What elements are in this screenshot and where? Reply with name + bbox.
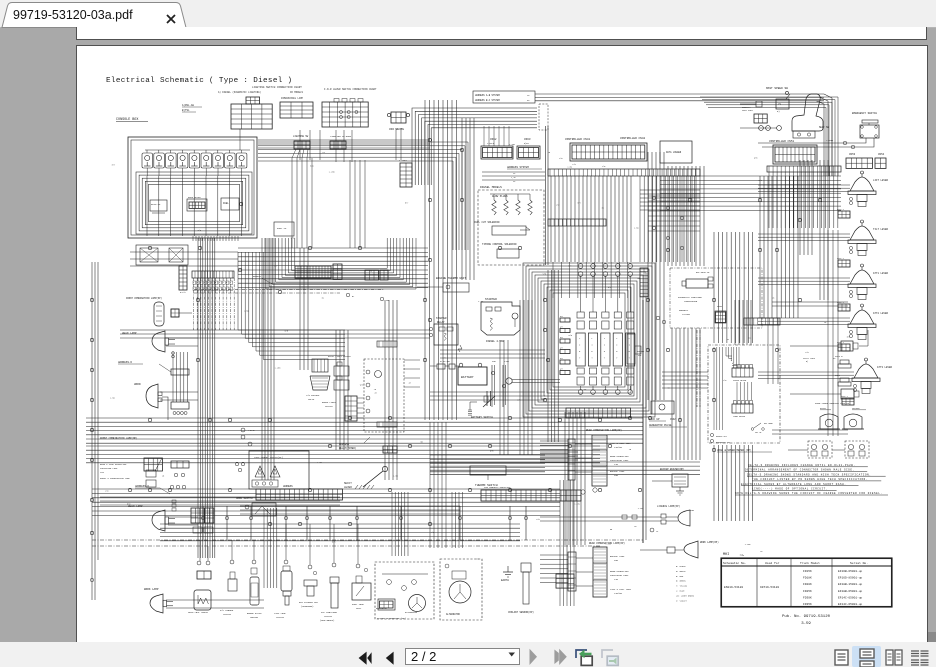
svg-text:T: T	[579, 357, 581, 360]
svg-text:FD18K: FD18K	[803, 577, 812, 580]
svg-text:REAR COMBINATION LAMP(OP): REAR COMBINATION LAMP(OP)	[586, 429, 622, 432]
svg-text:1.25L: 1.25L	[574, 503, 581, 506]
svg-text:W-T/M: W-T/M	[180, 292, 185, 294]
svg-text:F: F	[616, 350, 618, 353]
svg-text:Y/G: Y/G	[559, 157, 563, 160]
svg-text:F: F	[591, 350, 593, 353]
svg-text:ATT: ATT	[560, 347, 563, 350]
svg-text:CN62: CN62	[670, 418, 676, 421]
svg-text:EF18B-65001-up: EF18B-65001-up	[838, 590, 863, 593]
svg-text:Y/G: Y/G	[602, 165, 606, 168]
svg-text:G/R: G/R	[608, 286, 612, 289]
svg-text:HORN SWITCH: HORN SWITCH	[236, 497, 253, 500]
svg-text:LINE(----) MADE OF OPTIONAL CI: LINE(----) MADE OF OPTIONAL CIRCUIT.	[752, 487, 828, 491]
svg-text:SWITCH: SWITCH	[223, 613, 232, 616]
svg-text:HARNESS A-B SYSTEM: HARNESS A-B SYSTEM	[475, 94, 500, 97]
svg-text:EF16D-85001-up: EF16D-85001-up	[838, 577, 863, 580]
svg-text:ATT: ATT	[560, 368, 563, 371]
svg-text:1.5W: 1.5W	[634, 227, 639, 230]
svg-text:HARNESS.D: HARNESS.D	[118, 361, 132, 364]
svg-text:STARTER: STARTER	[436, 317, 447, 320]
svg-text:Truck Model: Truck Model	[800, 561, 820, 565]
svg-text:TILT LEVER: TILT LEVER	[873, 228, 889, 231]
svg-text:T: T	[629, 357, 631, 360]
svg-text:HARNESS.D: HARNESS.D	[135, 485, 149, 488]
svg-text:1P: 1P	[513, 172, 516, 175]
svg-text:LOAD METER: LOAD METER	[733, 415, 746, 418]
svg-text:NOT NORM: NOT NORM	[764, 423, 773, 425]
svg-text:REGULATOR: REGULATOR	[376, 607, 388, 610]
svg-text:CN9: CN9	[492, 360, 496, 363]
svg-text:2B: 2B	[162, 474, 165, 477]
svg-text:(ENG GROUP): (ENG GROUP)	[320, 619, 334, 622]
svg-text:1.25B: 1.25B	[745, 543, 752, 546]
svg-text:EF14C-65001-up: EF14C-65001-up	[838, 603, 863, 606]
svg-text:L,1P: L,1P	[511, 176, 517, 179]
svg-text:1.25B: 1.25B	[638, 507, 645, 510]
svg-text:2B: 2B	[772, 297, 775, 300]
svg-text:CN63: CN63	[524, 138, 531, 141]
svg-text:1.25B: 1.25B	[329, 170, 336, 173]
svg-text:REAR & SIDE DIRECTION: REAR & SIDE DIRECTION	[100, 463, 127, 466]
svg-text:4P: 4P	[527, 99, 530, 102]
svg-text:BACKUP BUZZER(OP): BACKUP BUZZER(OP)	[660, 468, 685, 471]
svg-text:CN6 WHITE: CN6 WHITE	[389, 128, 404, 131]
svg-text:CONTROLLER CN41: CONTROLLER CN41	[565, 138, 590, 141]
svg-text:L5: L5	[274, 264, 277, 267]
svg-text:SWITCH: SWITCH	[276, 616, 285, 619]
svg-text:INDICATOR LAMP: INDICATOR LAMP	[610, 459, 629, 462]
svg-text:1.5W: 1.5W	[393, 474, 398, 477]
svg-text:I: I	[579, 344, 581, 347]
svg-text:VINYL TAPE: VINYL TAPE	[803, 357, 816, 360]
svg-text:7-B9: 7-B9	[504, 360, 510, 363]
svg-text:FRONT COMBINATION LAMP(OP): FRONT COMBINATION LAMP(OP)	[100, 437, 138, 440]
svg-text:STOP & TAIL LAMP: STOP & TAIL LAMP	[610, 442, 632, 445]
svg-text:SPEED METER: SPEED METER	[733, 379, 747, 382]
svg-text:Used for: Used for	[765, 561, 780, 565]
svg-text:F-N-R LEVER SWITCH CONNECTION: F-N-R LEVER SWITCH CONNECTION CHART	[324, 88, 377, 91]
svg-text:VALVE: VALVE	[308, 398, 315, 401]
svg-text:Electrical Schematic ( Type :: Electrical Schematic ( Type : Diesel )	[106, 77, 292, 85]
svg-text:Y/G: Y/G	[805, 351, 809, 354]
svg-text:EF18B-15001-up: EF18B-15001-up	[838, 583, 863, 586]
svg-text:B/W: B/W	[569, 334, 573, 337]
svg-text:BRAKE FLUID: BRAKE FLUID	[247, 612, 262, 615]
svg-text:A)AT: A)AT	[524, 142, 530, 145]
svg-text:EARTH: EARTH	[501, 579, 509, 582]
svg-text:A): A)	[777, 110, 780, 113]
svg-text:HARNESS: HARNESS	[283, 485, 293, 488]
svg-text:1.25L: 1.25L	[317, 461, 324, 464]
svg-text:MAST SPEED SW: MAST SPEED SW	[766, 87, 788, 90]
svg-text:AIR CLEANER SEN: AIR CLEANER SEN	[299, 601, 318, 604]
svg-text:CONTROLLER CN42: CONTROLLER CN42	[620, 137, 645, 140]
svg-text:1 CN62: 1 CN62	[399, 159, 408, 162]
svg-text:L-B17B: L-B17B	[248, 430, 255, 432]
svg-text:2R: 2R	[634, 525, 637, 528]
svg-text:Pub. No. 99719-53120: Pub. No. 99719-53120	[782, 614, 831, 619]
svg-text:1.25L: 1.25L	[605, 543, 612, 546]
svg-text:FD30K: FD30K	[803, 596, 812, 599]
svg-text:Schematic No.: Schematic No.	[723, 561, 747, 565]
svg-text:LICENCE LAMP(OP): LICENCE LAMP(OP)	[657, 505, 681, 508]
svg-text:L: L	[616, 337, 618, 340]
svg-text:UNIT: UNIT	[356, 607, 362, 610]
svg-text:I: I	[591, 344, 593, 347]
svg-text:T: T	[591, 357, 593, 360]
svg-text:BACKUP LAMP: BACKUP LAMP	[610, 555, 625, 558]
svg-text:RELAY: RELAY	[437, 321, 445, 324]
svg-text:2R: 2R	[374, 392, 377, 395]
svg-text:FUEL CUT SOLENOID: FUEL CUT SOLENOID	[474, 221, 500, 224]
svg-text:FUEL: FUEL	[223, 202, 229, 205]
svg-text:1.25L: 1.25L	[581, 388, 588, 391]
svg-text:CONTROLLER CN51: CONTROLLER CN51	[769, 140, 794, 143]
svg-text:G/R: G/R	[332, 541, 336, 544]
svg-text:L/W: L/W	[723, 379, 727, 382]
svg-text:ALTERNATOR: ALTERNATOR	[405, 611, 418, 614]
svg-text:HARNESS: HARNESS	[253, 275, 262, 278]
svg-text:FIRST: FIRST	[820, 407, 827, 410]
svg-text:B)TSL: B)TSL	[182, 109, 190, 112]
svg-text:W: WHITE: W: WHITE	[676, 570, 686, 573]
svg-text:GLOW PLUGS: GLOW PLUGS	[492, 195, 508, 198]
svg-text:L: L	[629, 337, 631, 340]
svg-text:B2: B2	[833, 357, 835, 360]
svg-text:HARNESS B-C SYSTEM: HARNESS B-C SYSTEM	[475, 99, 500, 102]
svg-text:Y/G: Y/G	[536, 518, 540, 521]
svg-text:FRONT & COMBINATION LAMP: FRONT & COMBINATION LAMP	[100, 477, 131, 480]
svg-text:LIGHTING SW: LIGHTING SW	[293, 135, 309, 138]
svg-text:21W/8W: 21W/8W	[614, 446, 623, 449]
svg-text:BRAKE LIGHT: BRAKE LIGHT	[322, 401, 336, 404]
svg-text:HORN: HORN	[134, 383, 141, 386]
svg-text:5B: 5B	[610, 528, 613, 531]
svg-text:HEAD LAMP: HEAD LAMP	[122, 332, 137, 335]
svg-text:LS: LS	[778, 103, 781, 106]
svg-text:LIGHTING SWITCH CONNECTION CHA: LIGHTING SWITCH CONNECTION CHART	[252, 86, 302, 89]
svg-text:2R: 2R	[548, 151, 551, 154]
svg-text:2R: 2R	[408, 382, 411, 385]
svg-text:BDT DASH SW: BDT DASH SW	[696, 271, 710, 274]
svg-text:SECOND: SECOND	[852, 407, 860, 410]
svg-text:ATT: ATT	[560, 315, 563, 318]
svg-text:BATTERY: BATTERY	[461, 376, 474, 379]
svg-text:CN45: CN45	[717, 305, 723, 308]
svg-text:A)DSL-AG: A)DSL-AG	[182, 104, 195, 107]
svg-text:FD15K: FD15K	[803, 570, 812, 573]
svg-text:ATT1 LEVER: ATT1 LEVER	[873, 272, 889, 275]
svg-text:OVER SPEED WARNING LAMP(OP): OVER SPEED WARNING LAMP(OP)	[815, 402, 850, 405]
svg-text:REAR DIRECTION: REAR DIRECTION	[610, 570, 629, 573]
svg-text:L/W: L/W	[572, 163, 576, 166]
svg-text:HARNESS: HARNESS	[339, 443, 350, 446]
svg-text:B: BLACK: B: BLACK	[676, 565, 686, 568]
svg-text:B/W: B/W	[291, 236, 295, 239]
svg-text:SWITCH: SWITCH	[324, 615, 333, 618]
svg-text:G: GREEN: G: GREEN	[676, 580, 686, 583]
svg-text:GLOW SW: GLOW SW	[151, 203, 161, 206]
svg-text:DELTA-S DRAWING SHOWS STANDARD: DELTA-S DRAWING SHOWS STANDARD AND HIGH …	[747, 473, 871, 476]
svg-text:T: T	[616, 357, 618, 360]
svg-text:CN8 HARNESS-IGNITION: CN8 HARNESS-IGNITION	[484, 486, 511, 489]
svg-text:HOUR METER: HOUR METER	[188, 196, 201, 199]
svg-text:F: F	[604, 350, 606, 353]
svg-text:SENSOR: SENSOR	[250, 616, 259, 619]
svg-text:ATT: ATT	[560, 357, 563, 360]
svg-text:ATT: ATT	[560, 336, 563, 339]
svg-text:R/Y: R/Y	[112, 163, 116, 166]
svg-text:FD20K: FD20K	[803, 583, 812, 586]
svg-text:10W: 10W	[614, 559, 619, 562]
svg-text:CN41 1: CN41 1	[841, 395, 849, 398]
svg-text:WORK LAMP: WORK LAMP	[144, 588, 159, 591]
svg-text:2P: 2P	[527, 94, 530, 97]
svg-text:SWITCH: SWITCH	[325, 405, 333, 408]
svg-text:MHI: MHI	[723, 553, 729, 557]
svg-text:10W: 10W	[690, 509, 695, 512]
svg-text:EF16B-65001-up: EF16B-65001-up	[838, 570, 863, 573]
svg-text:LG: LIGHT GREEN: LG: LIGHT GREEN	[676, 594, 695, 597]
svg-text:TRANSDUCER: TRANSDUCER	[684, 300, 698, 303]
svg-text:2B: 2B	[824, 321, 827, 324]
svg-text:B2: B2	[602, 207, 604, 210]
svg-text:B2: B2	[477, 557, 479, 560]
svg-text:REAR DIRECTION: REAR DIRECTION	[610, 455, 629, 458]
svg-text:SET UP: SET UP	[755, 432, 761, 434]
svg-text:LP: LP	[656, 530, 659, 533]
svg-text:BATTERY SWITCH: BATTERY SWITCH	[471, 416, 493, 419]
svg-text:GENERATOR PULSE: GENERATOR PULSE	[649, 424, 672, 427]
svg-text:STOP LAMP: STOP LAMP	[274, 612, 287, 615]
svg-text:CN53: CN53	[849, 153, 856, 156]
svg-text:DIAGNOSIS SET: DIAGNOSIS SET	[716, 441, 731, 444]
svg-text:STOP & TAIL LAMP: STOP & TAIL LAMP	[610, 588, 632, 591]
svg-text:21W/8W: 21W/8W	[614, 592, 623, 595]
svg-text:I: I	[629, 344, 631, 347]
svg-text:DIMENSIONAL LAMP: DIMENSIONAL LAMP	[281, 97, 304, 100]
svg-text:3-59: 3-59	[801, 622, 811, 626]
svg-text:INDICATOR LAMP: INDICATOR LAMP	[100, 467, 118, 470]
svg-text:F: F	[629, 350, 631, 353]
svg-text:F/C THERMO: F/C THERMO	[220, 609, 234, 612]
svg-text:TIMING CONTROL SOLENOID: TIMING CONTROL SOLENOID	[482, 243, 517, 246]
svg-text:DIESEL 2.5KW: DIESEL 2.5KW	[486, 340, 505, 343]
svg-text:DOUBLE SET: DOUBLE SET	[716, 436, 728, 438]
svg-text:FL B1.25R: FL B1.25R	[440, 361, 451, 363]
svg-text:ENGINE THERMO UNIT: ENGINE THERMO UNIT	[436, 277, 467, 280]
svg-text:L: L	[579, 337, 581, 340]
svg-text:HARNESS SYSTEM: HARNESS SYSTEM	[507, 166, 529, 169]
svg-text:EMERGENCY SWITCH: EMERGENCY SWITCH	[852, 112, 877, 115]
svg-text:2B: 2B	[727, 338, 730, 341]
svg-text:L: L	[604, 337, 606, 340]
svg-text:HYDRAULIC PRESSURE: HYDRAULIC PRESSURE	[678, 296, 702, 299]
svg-text:L/W: L/W	[105, 490, 109, 493]
svg-text:COOLANT SENSOR(OP): COOLANT SENSOR(OP)	[508, 611, 534, 614]
svg-text:B): B)	[806, 361, 808, 363]
svg-text:21W: 21W	[100, 471, 104, 474]
svg-text:F: F	[579, 350, 581, 353]
svg-text:ATT: ATT	[560, 326, 563, 329]
svg-text:CN41 1: CN41 1	[837, 208, 845, 211]
svg-text:I: I	[616, 344, 618, 347]
svg-text:G/R: G/R	[847, 336, 851, 339]
svg-text:CN62: CN62	[490, 138, 497, 141]
svg-text:ALTERNATOR: ALTERNATOR	[446, 613, 460, 616]
svg-text:SEAT CN61: SEAT CN61	[742, 109, 754, 112]
svg-text:99719-53120: 99719-53120	[760, 586, 779, 589]
svg-text:B2: B2	[322, 296, 324, 299]
svg-text:DIESEL MODELS: DIESEL MODELS	[480, 186, 502, 189]
svg-text:1.25B: 1.25B	[509, 143, 516, 146]
svg-text:2B: 2B	[629, 448, 632, 451]
svg-text:T: T	[604, 357, 606, 360]
svg-text:RELAY(TIMER): RELAY(TIMER)	[339, 447, 357, 450]
svg-text:ES019-53120: ES019-53120	[724, 586, 743, 589]
svg-text:R/Y: R/Y	[405, 201, 409, 204]
svg-text:SHIFT: SHIFT	[344, 482, 352, 485]
svg-text:HARNESS: HARNESS	[679, 309, 689, 312]
svg-text:ELECTRICAL SHOWS BY ALTERNATE: ELECTRICAL SHOWS BY ALTERNATE LONG AND S…	[741, 483, 846, 486]
svg-text:1.5W: 1.5W	[110, 397, 115, 400]
svg-text:CN44 B: CN44 B	[835, 355, 843, 358]
svg-text:STARTER: STARTER	[485, 298, 497, 301]
svg-text:SEAT SW: SEAT SW	[819, 126, 830, 129]
svg-text:1.25B: 1.25B	[275, 367, 282, 370]
svg-text:21W: 21W	[614, 578, 619, 581]
svg-text:FD25K: FD25K	[803, 590, 812, 593]
svg-text:L/W: L/W	[556, 204, 560, 207]
svg-text:Y: YELLOW: Y: YELLOW	[676, 585, 688, 588]
svg-text:FRONT COMBINATION LAMP(OP): FRONT COMBINATION LAMP(OP)	[126, 297, 162, 300]
svg-text:WORK LAMP(OP): WORK LAMP(OP)	[700, 541, 719, 544]
svg-text:GL: GL	[352, 296, 354, 298]
svg-text:TURN SIGNAL SWITCH(OP): TURN SIGNAL SWITCH(OP)	[254, 456, 283, 459]
svg-text:CN54: CN54	[878, 153, 885, 156]
svg-text:1P: 1P	[513, 180, 516, 183]
svg-text:ATT3 LEVER: ATT3 LEVER	[877, 366, 893, 369]
svg-text:EF14C-65001-up: EF14C-65001-up	[838, 596, 863, 599]
svg-text:SYSTEM: SYSTEM	[682, 313, 691, 316]
svg-text:L-SEAT: L-SEAT	[826, 139, 834, 142]
svg-text:OIL PRESSURE: OIL PRESSURE	[321, 611, 337, 614]
svg-text:21W: 21W	[614, 463, 619, 466]
svg-text:FUEL SW: FUEL SW	[277, 227, 287, 230]
svg-text:1.25L: 1.25L	[478, 300, 485, 303]
svg-text:B/W: B/W	[310, 165, 314, 168]
svg-text:Serial No.: Serial No.	[850, 561, 868, 565]
svg-text:W/B: W/B	[754, 157, 758, 160]
svg-text:L: L	[591, 337, 593, 340]
svg-text:L5: L5	[760, 550, 763, 553]
svg-text:V: VIOLET: V: VIOLET	[676, 599, 688, 602]
svg-text:DATA LOGGER: DATA LOGGER	[666, 151, 682, 154]
svg-text:L/W CONTROL: L/W CONTROL	[306, 394, 320, 397]
svg-text:(MUDGUARD): (MUDGUARD)	[301, 605, 313, 608]
svg-text:L: BLUE: L: BLUE	[676, 590, 685, 593]
svg-text:FUEL TANK: FUEL TANK	[352, 603, 365, 606]
svg-text:INDICATOR LAMP: INDICATOR LAMP	[610, 574, 629, 577]
svg-text:A) DIESEL (SCHEMATIC LIGHTING): A) DIESEL (SCHEMATIC LIGHTING)	[218, 91, 262, 94]
svg-text:LOAD & SPEED METER (OP): LOAD & SPEED METER (OP)	[717, 449, 752, 452]
svg-text:LIGHTING SW ROOM: LIGHTING SW ROOM	[330, 135, 352, 138]
svg-text:LEVER: LEVER	[344, 486, 352, 489]
svg-text:CLOSED ALTERNATOR (OP): CLOSED ALTERNATOR (OP)	[377, 617, 406, 620]
svg-text:FR MODELS: FR MODELS	[290, 91, 303, 94]
svg-text:I: I	[604, 344, 606, 347]
svg-text:LIFT LEVER: LIFT LEVER	[873, 179, 889, 182]
svg-text:FD35K: FD35K	[803, 603, 812, 606]
svg-text:ATT2 LEVER: ATT2 LEVER	[873, 312, 889, 315]
svg-text:R/Y: R/Y	[577, 201, 581, 204]
svg-text:W/B: W/B	[490, 449, 494, 452]
svg-text:B2: B2	[748, 337, 750, 340]
svg-text:R: RED: R: RED	[676, 575, 684, 578]
svg-text:W/B: W/B	[360, 384, 364, 387]
svg-text:MAIN LEVL SENSR: MAIN LEVL SENSR	[188, 611, 208, 614]
